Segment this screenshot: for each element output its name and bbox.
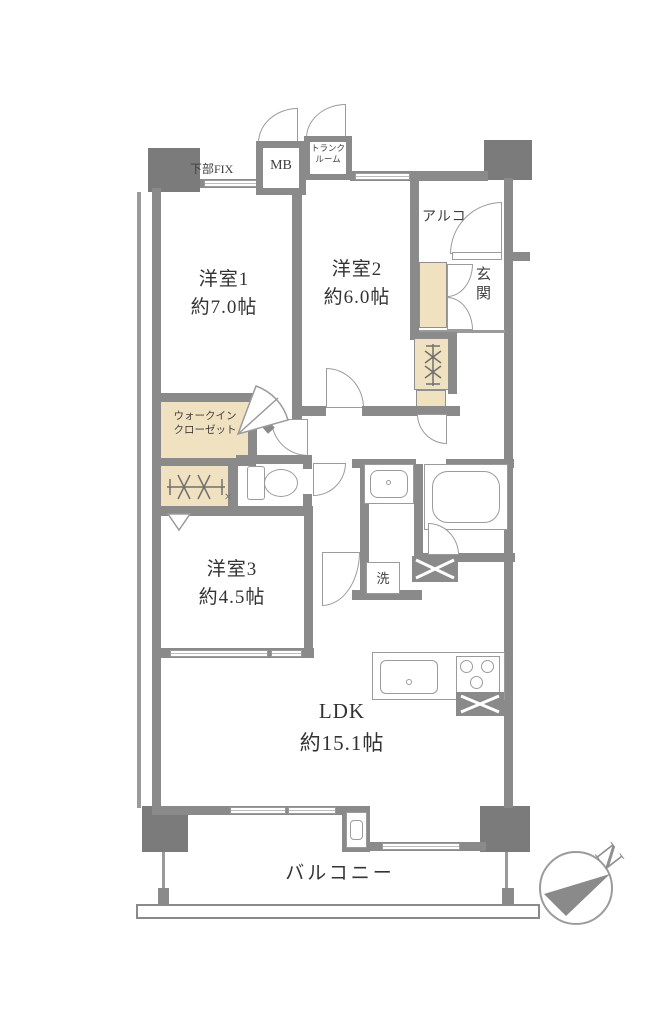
duct-cross-icon — [456, 692, 504, 716]
fold-door-mark — [166, 512, 192, 532]
window-room3 — [170, 650, 268, 657]
ldk-label: LDK 約15.1帖 — [260, 696, 424, 759]
wic-label: ウォークイン クローゼット — [161, 410, 249, 437]
wall — [362, 406, 412, 416]
room1-label: 洋室1 約7.0帖 — [158, 266, 290, 321]
window-ldk — [382, 843, 460, 850]
window-room3 — [271, 650, 302, 657]
boundary-line-left — [137, 192, 141, 808]
toilet-door-arc — [313, 463, 346, 496]
burner-icon — [460, 660, 473, 673]
wall — [410, 171, 419, 339]
genkan-label: 玄関 — [472, 266, 493, 336]
room2-label: 洋室2 約6.0帖 — [306, 256, 408, 311]
window-room2-top — [355, 173, 410, 180]
toilet-tank — [247, 466, 265, 500]
trunk-door-arc — [306, 104, 346, 138]
wall — [302, 406, 326, 416]
window-kabu-fix — [204, 180, 258, 187]
kitchen-sink — [380, 660, 438, 694]
shoe-cabinet — [419, 262, 447, 328]
pillar — [480, 806, 530, 852]
faucet-dot — [386, 480, 391, 485]
wall — [303, 455, 312, 469]
hanger-pipe-icon — [418, 341, 448, 389]
duct-cross-icon — [412, 556, 458, 582]
wall — [448, 334, 457, 394]
wall — [236, 455, 312, 464]
entrance-door-leaf — [452, 252, 502, 260]
wall — [513, 252, 530, 261]
pillar — [484, 140, 532, 180]
mb-label: MB — [256, 158, 306, 174]
burner-icon — [470, 676, 483, 689]
bathtub — [432, 471, 500, 523]
balcony-divider — [505, 852, 508, 890]
faucet-dot — [406, 679, 412, 685]
wall — [414, 464, 423, 560]
balcony-divider — [162, 852, 165, 890]
laundry-label: 洗 — [366, 568, 400, 587]
shoe-cabinet-door-arc — [447, 297, 473, 330]
slop-sink-basin — [350, 820, 363, 840]
washroom-door-arc — [417, 414, 447, 444]
wall — [412, 171, 488, 181]
trunk-label: トランク ルーム — [304, 143, 352, 164]
balcony-label: バルコニー — [258, 858, 422, 885]
mb-door-arc — [258, 108, 298, 143]
kabu-fix-label: 下部FIX — [190, 160, 258, 177]
toilet-bowl — [264, 469, 298, 497]
corner-mark: ✕ — [224, 492, 232, 503]
pipe-space — [416, 390, 446, 407]
balcony-railing — [136, 904, 540, 919]
window-ldk — [288, 807, 336, 814]
floor-plan: 下部FIX MB トランク ルーム アルコープ 玄関 洋室1 約7.0帖 洋室2… — [0, 0, 668, 1024]
shoe-cabinet-door-arc — [447, 264, 473, 297]
burner-icon — [481, 660, 494, 673]
room3-label: 洋室3 約4.5帖 — [158, 556, 306, 611]
room2-door-arc — [326, 368, 364, 408]
window-ldk — [230, 807, 286, 814]
hanger-pipe-icon — [164, 470, 228, 504]
